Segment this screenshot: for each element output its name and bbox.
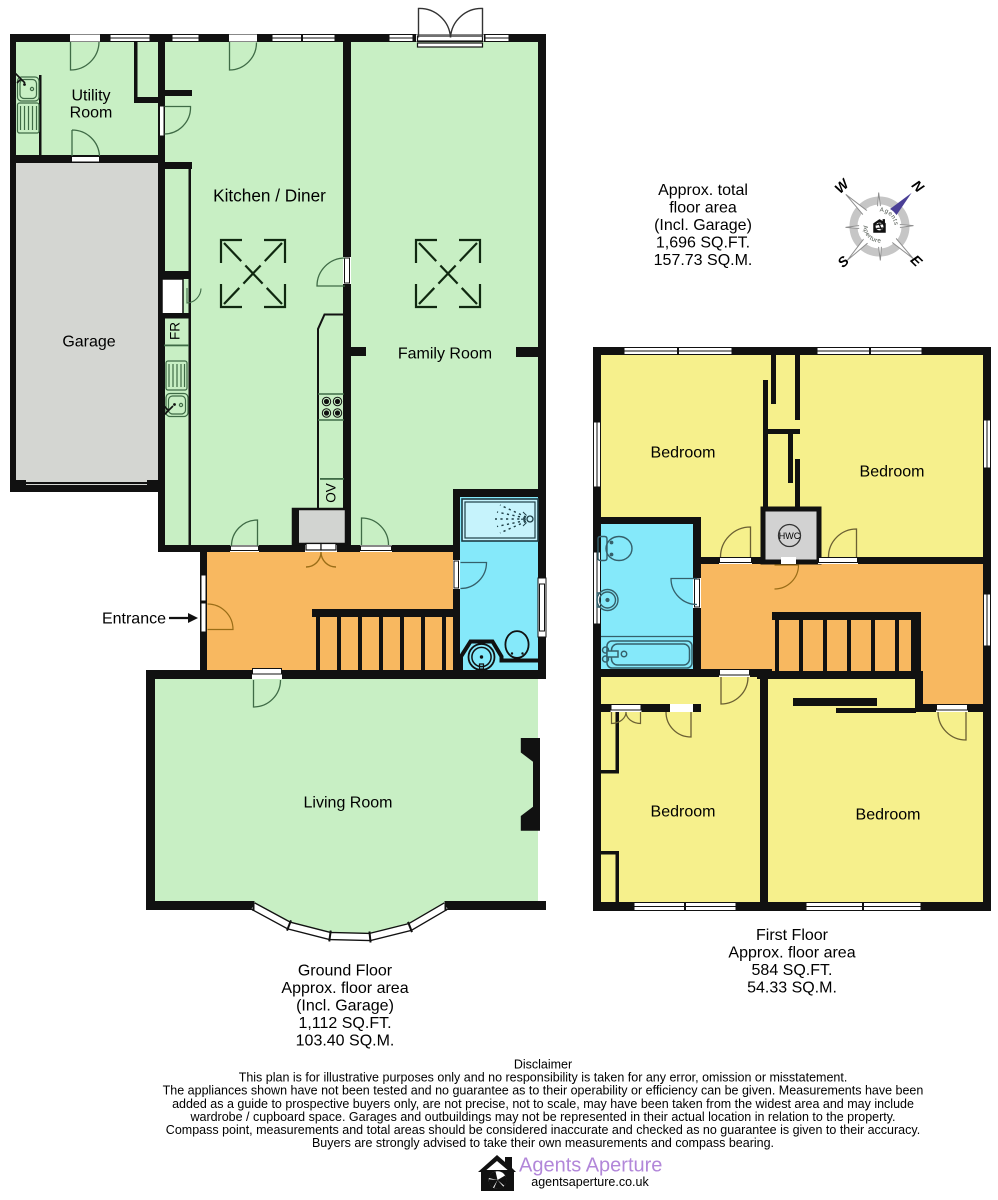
svg-text:Agents Aperture: Agents Aperture — [519, 1155, 662, 1177]
svg-text:Kitchen / Diner: Kitchen / Diner — [213, 186, 326, 206]
svg-text:Approx. floor area: Approx. floor area — [281, 980, 408, 997]
svg-text:floor area: floor area — [669, 200, 737, 217]
svg-text:(Incl. Garage): (Incl. Garage) — [654, 217, 752, 234]
svg-text:Room: Room — [70, 105, 113, 122]
svg-text:Utility: Utility — [71, 88, 110, 105]
svg-text:Bedroom: Bedroom — [856, 807, 921, 824]
svg-text:584 SQ.FT.: 584 SQ.FT. — [752, 962, 833, 979]
svg-text:1,696 SQ.FT.: 1,696 SQ.FT. — [656, 235, 750, 252]
svg-text:HWC: HWC — [779, 531, 801, 541]
svg-text:This plan is for illustrative: This plan is for illustrative purposes o… — [239, 1071, 848, 1085]
svg-text:Family Room: Family Room — [398, 346, 492, 363]
svg-text:OV: OV — [324, 483, 339, 503]
svg-text:(Incl. Garage): (Incl. Garage) — [296, 998, 394, 1015]
svg-text:First Floor: First Floor — [756, 927, 829, 944]
svg-text:Disclaimer: Disclaimer — [514, 1058, 572, 1072]
svg-text:Approx. floor area: Approx. floor area — [728, 945, 855, 962]
svg-text:agentsaperture.co.uk: agentsaperture.co.uk — [531, 1175, 649, 1189]
svg-text:Entrance: Entrance — [102, 611, 166, 628]
svg-text:Compass point, measurements an: Compass point, measurements and total ar… — [166, 1123, 920, 1137]
svg-text:Ground Floor: Ground Floor — [298, 963, 393, 980]
svg-text:The appliances shown have not: The appliances shown have not been teste… — [163, 1084, 924, 1098]
svg-text:54.33 SQ.M.: 54.33 SQ.M. — [747, 980, 837, 997]
svg-text:Bedroom: Bedroom — [651, 445, 716, 462]
svg-text:Approx. total: Approx. total — [658, 182, 748, 199]
svg-text:Living Room: Living Room — [304, 795, 393, 812]
svg-text:Bedroom: Bedroom — [651, 804, 716, 821]
svg-text:1,112 SQ.FT.: 1,112 SQ.FT. — [298, 1015, 391, 1032]
svg-text:157.73 SQ.M.: 157.73 SQ.M. — [654, 252, 753, 269]
svg-text:Buyers are strongly advised to: Buyers are strongly advised to take thei… — [312, 1136, 774, 1150]
svg-text:Garage: Garage — [62, 334, 115, 351]
svg-text:Bedroom: Bedroom — [860, 464, 925, 481]
svg-text:added as a guide to prospectiv: added as a guide to prospective buyers o… — [172, 1097, 914, 1111]
svg-text:FR: FR — [168, 322, 183, 340]
svg-text:wardrobe / cupboard space. Gar: wardrobe / cupboard space. Garages and o… — [189, 1110, 895, 1124]
svg-text:103.40 SQ.M.: 103.40 SQ.M. — [296, 1033, 395, 1050]
